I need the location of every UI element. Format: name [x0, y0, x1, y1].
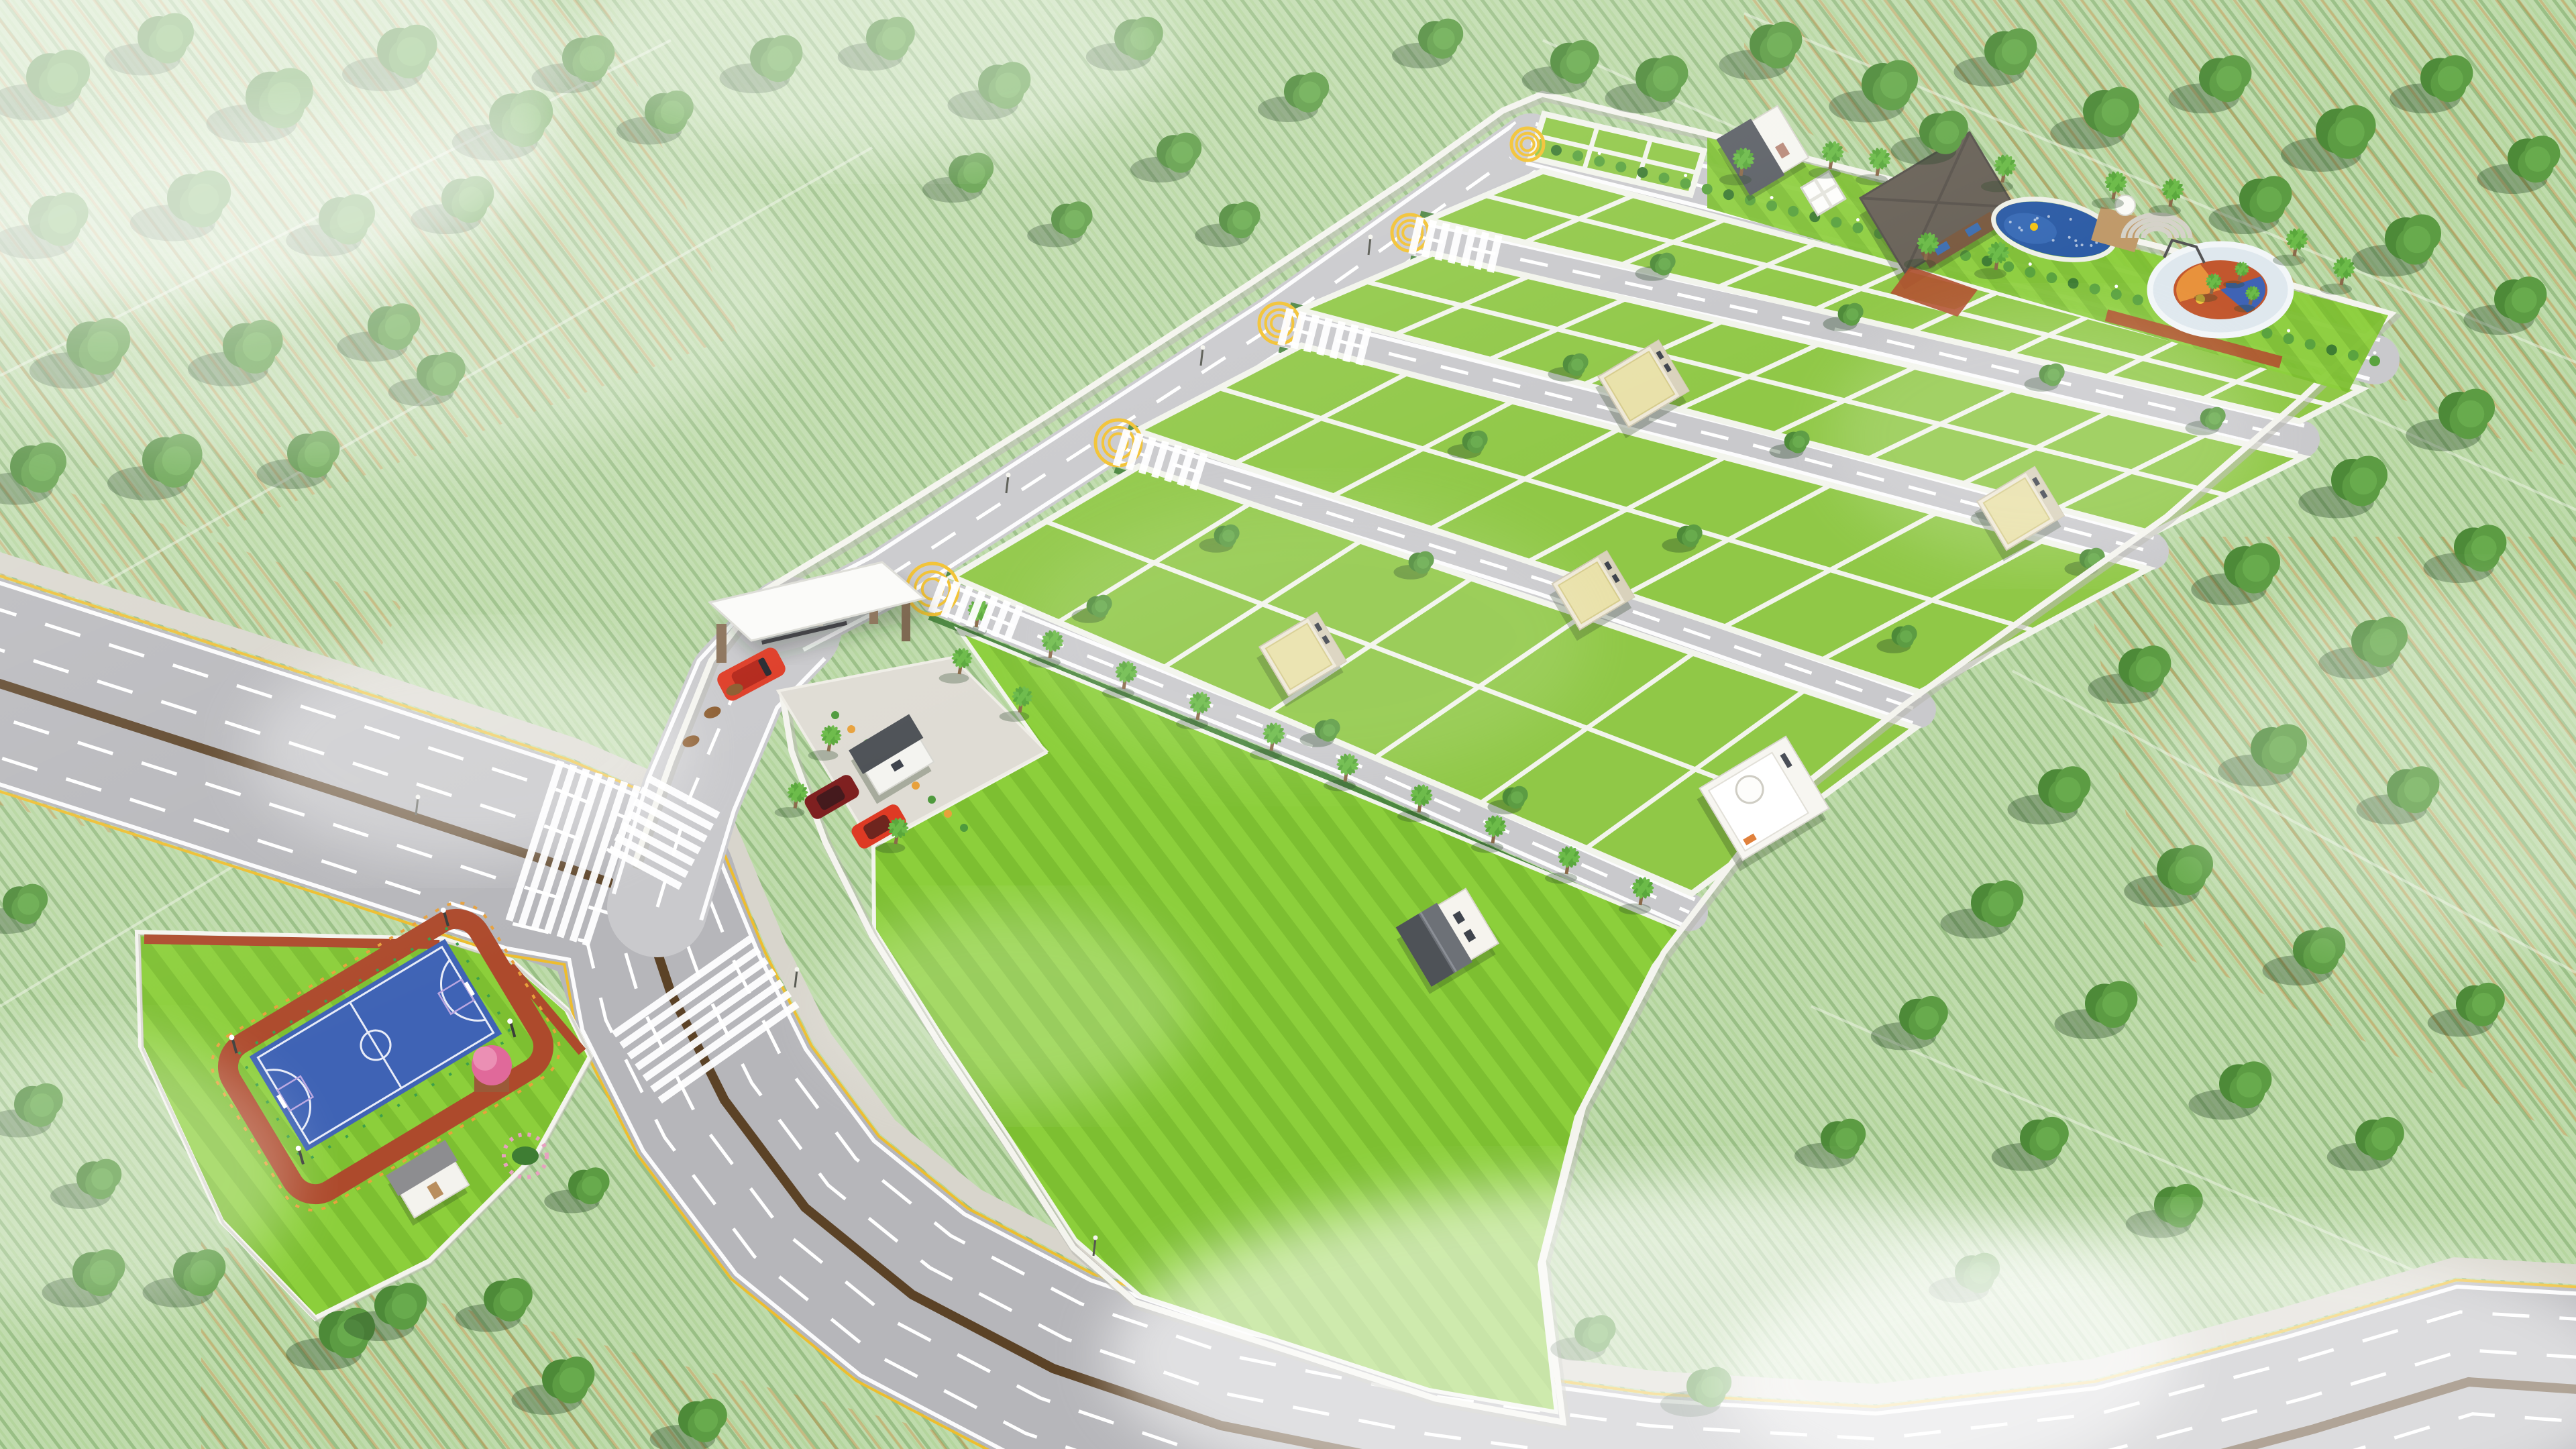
fog-cloud [1026, 496, 1590, 778]
fog-cloud [818, 906, 1194, 1107]
fog-cloud [1831, 309, 2261, 563]
scene-canvas [0, 0, 2576, 1449]
aerial-render [0, 0, 2576, 1449]
fog-cloud [248, 637, 691, 865]
